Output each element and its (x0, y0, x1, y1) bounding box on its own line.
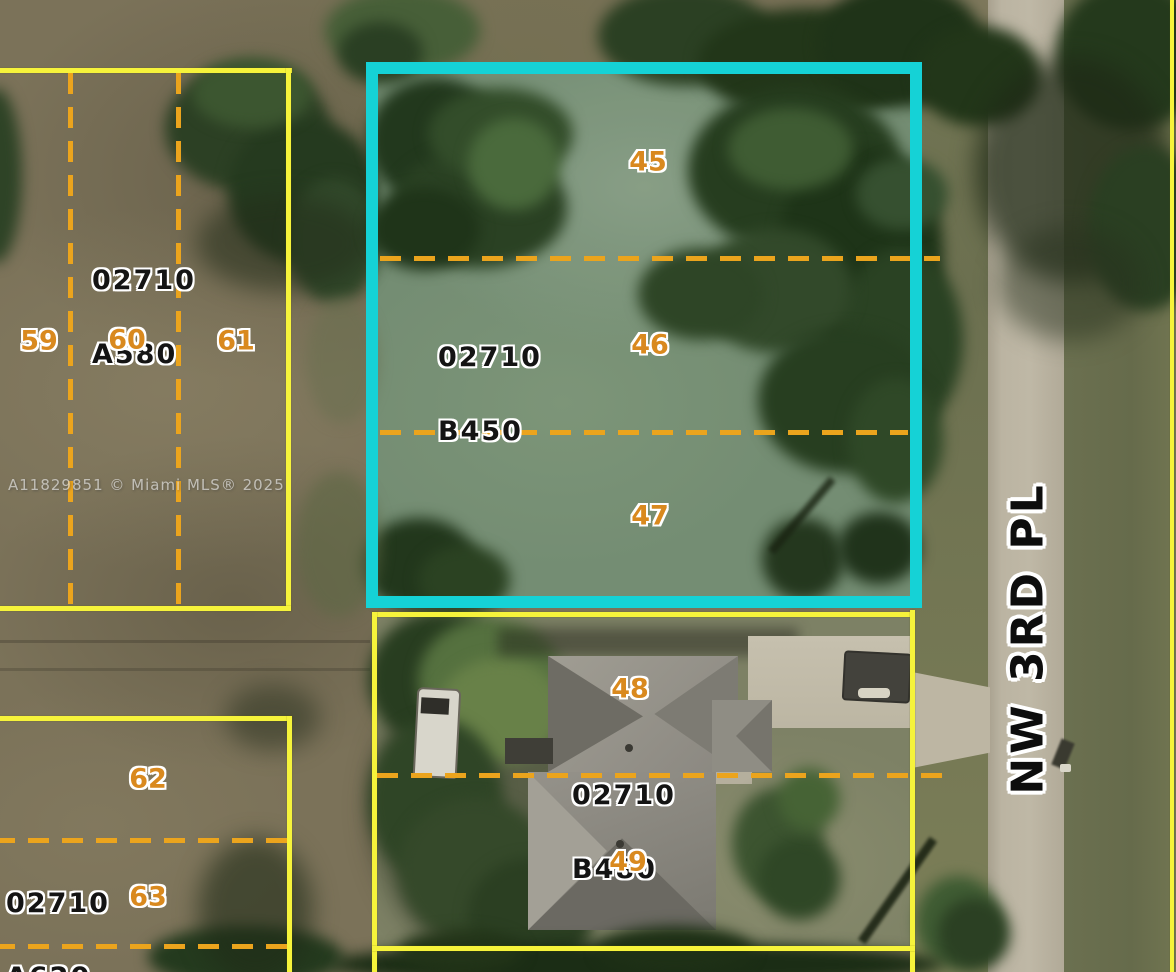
palm-canopy (758, 838, 840, 920)
parcel-id-line: B450 (438, 413, 542, 450)
parcel-b480-boundary-top (372, 612, 912, 617)
lot-number-49: 49 (609, 847, 647, 878)
parcel-id-a620: 02710 A620 (6, 848, 110, 972)
lot-number-63: 63 (129, 882, 167, 913)
parcel-id-line: A620 (6, 959, 110, 972)
tree-canopy (0, 88, 22, 263)
parcel-id-a580: 02710 A580 (92, 225, 196, 410)
tree-shadow (196, 196, 371, 291)
parcel-id-line: 02710 (92, 262, 196, 299)
parcel-a580-boundary-right (286, 68, 291, 611)
parcel-id-line: 02710 (6, 885, 110, 922)
hedge-row (398, 930, 523, 972)
lot-divider-59-60 (68, 73, 73, 606)
parcel-boundary-right-edge (1170, 0, 1174, 972)
parcel-a580-boundary-bottom (0, 606, 291, 611)
tree-shadow (198, 838, 313, 972)
mailbox (1060, 764, 1071, 772)
aerial-parcel-map: 02710 A580 02710 B450 02710 B480 02710 A… (0, 0, 1176, 972)
parcel-id-b450: 02710 B450 (438, 302, 542, 487)
boat-windshield (421, 697, 450, 714)
lot-number-48: 48 (611, 674, 649, 705)
lot-number-60: 60 (108, 325, 146, 356)
parcel-b480-boundary-bottom (372, 946, 915, 951)
lot-number-47: 47 (631, 501, 669, 532)
dirt-track-marks (0, 640, 370, 643)
mls-watermark: A11829851 © Miami MLS® 2025 (8, 476, 285, 494)
parcel-b480-boundary-left (372, 612, 377, 972)
parcel-b480-boundary-right (910, 610, 915, 972)
street-name-label: NW 3RD PL (1003, 481, 1054, 794)
dirt-track-marks (0, 668, 370, 671)
palm-canopy (938, 898, 1010, 970)
vehicle-glint (858, 688, 890, 698)
lot-number-61: 61 (217, 326, 255, 357)
driveway-apron (912, 672, 990, 768)
garage-door (505, 738, 553, 764)
parcel-a620-boundary-top (0, 716, 292, 721)
tree-shadow-on-road (998, 226, 1143, 341)
lot-number-59: 59 (20, 326, 58, 357)
parcel-id-line: 02710 (438, 339, 542, 376)
parcel-a620-boundary-right (287, 716, 292, 972)
lot-divider-62-63 (0, 838, 290, 843)
lot-number-45: 45 (629, 147, 667, 178)
lot-number-46: 46 (631, 330, 669, 361)
parcel-id-line: 02710 (572, 777, 676, 814)
lot-number-62: 62 (129, 764, 167, 795)
parcel-id-b480: 02710 B480 (572, 740, 676, 925)
parcel-a580-boundary-top (0, 68, 292, 73)
